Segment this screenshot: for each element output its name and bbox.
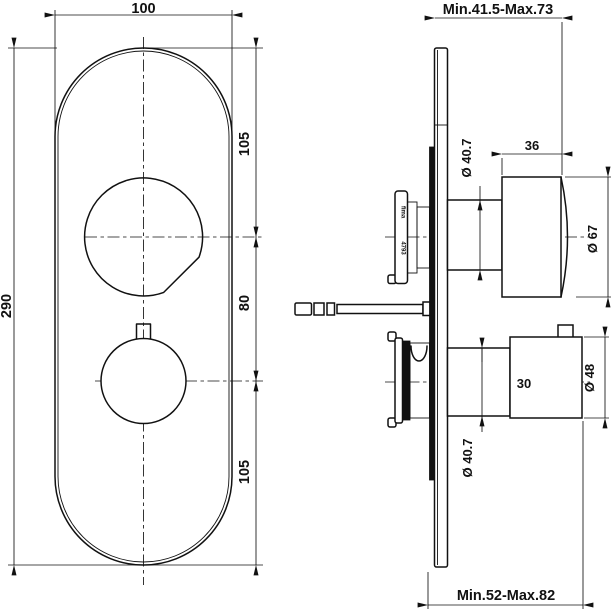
dimension-knob-lower-dia: Ø 48 xyxy=(582,337,609,418)
dimension-depth-top: Min.41.5-Max.73 xyxy=(435,2,562,175)
dimension-chain-right: 105 80 105 xyxy=(145,48,263,565)
lower-cartridge xyxy=(388,332,430,427)
volume-knob-side xyxy=(448,177,568,297)
dim-shaft-upper-label: Ø 40.7 xyxy=(459,138,474,177)
pipe-tube xyxy=(337,305,423,314)
temperature-knob-side: 30 xyxy=(448,325,583,418)
supply-pipe xyxy=(295,302,435,316)
cartridge-seal-band xyxy=(403,341,411,420)
dim-seg-top-label: 105 xyxy=(237,132,253,156)
dimension-knob-upper-depth: 36 xyxy=(502,138,562,175)
dim-shaft-lower-label: Ø 40.7 xyxy=(460,438,475,477)
dim-knob-upper-dia-label: Ø 67 xyxy=(585,225,600,253)
dim-width-label: 100 xyxy=(131,1,155,17)
dim-knob-lower-dia-label: Ø 48 xyxy=(582,364,597,392)
dim-depth-top-label: Min.41.5-Max.73 xyxy=(443,2,553,18)
volume-knob-body xyxy=(502,177,561,297)
pipe-segment xyxy=(314,303,324,315)
volume-knob-shaft xyxy=(448,200,503,270)
side-view: fima 4793 30 xyxy=(295,2,611,609)
pipe-segment xyxy=(327,303,335,315)
dim-depth-bottom-label: Min.52-Max.82 xyxy=(457,588,555,604)
dim-seg-bottom-label: 105 xyxy=(237,460,253,484)
temperature-knob-front xyxy=(101,324,186,424)
cartridge-body xyxy=(417,207,430,268)
dim-seg-mid-label: 80 xyxy=(237,295,253,311)
cartridge-brand-marking: fima xyxy=(400,206,406,219)
temperature-knob-shaft xyxy=(448,348,511,416)
dim-height-label: 290 xyxy=(0,294,15,318)
drawing-sheet: 100 290 105 80 105 xyxy=(0,0,612,612)
dim-knob-upper-depth-label: 36 xyxy=(525,138,539,153)
dimension-height: 290 xyxy=(0,48,263,565)
cartridge-code-marking: 4793 xyxy=(400,241,406,255)
rough-in-body-edge xyxy=(430,147,435,480)
faceplate-side xyxy=(430,48,448,567)
technical-drawing: 100 290 105 80 105 xyxy=(0,0,612,612)
faceplate-edge xyxy=(435,48,448,567)
pipe-end-fitting xyxy=(295,303,312,315)
cartridge-body-step xyxy=(408,202,418,273)
temperature-knob-outline xyxy=(101,339,186,424)
front-view: 100 290 105 80 105 xyxy=(0,1,263,585)
dimension-depth-bottom: Min.52-Max.82 xyxy=(428,421,583,609)
cartridge-flange xyxy=(395,338,403,423)
dim-knob-lower-depth-label: 30 xyxy=(517,376,531,391)
cartridge-lever-slot xyxy=(411,346,427,361)
temperature-knob-tab-side xyxy=(558,325,573,338)
